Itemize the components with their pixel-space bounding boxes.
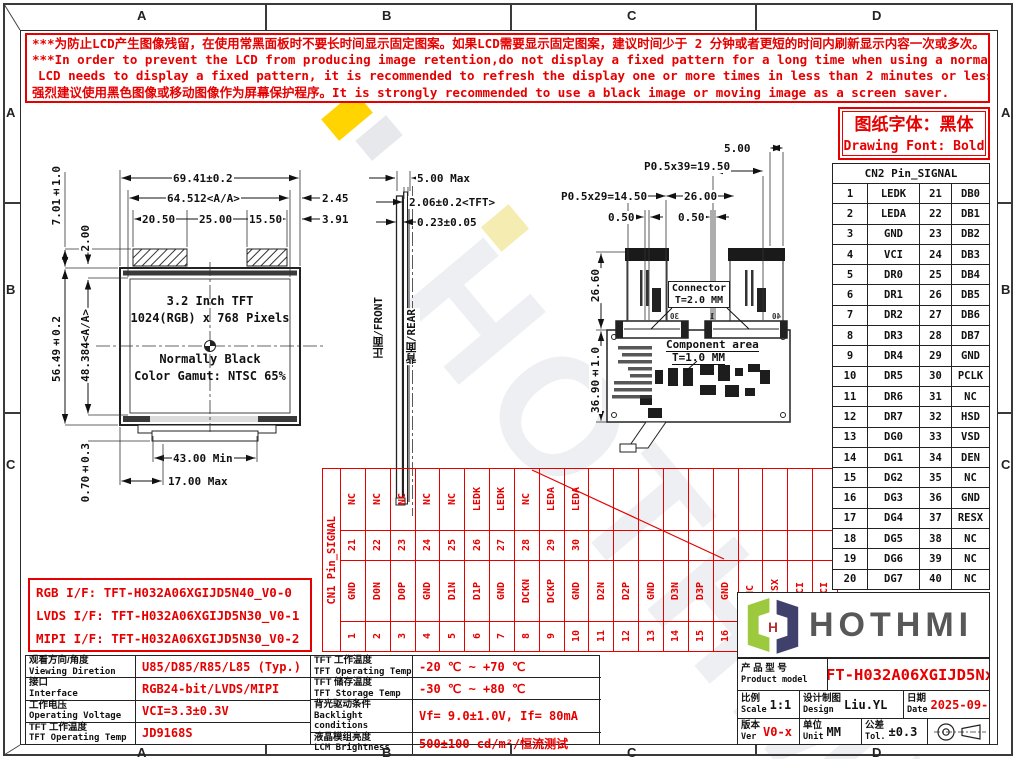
frame-divider <box>3 202 20 204</box>
interface-partnumber-box: RGB I/F: TFT-H032A06XGIJD5N40_V0-0 LVDS … <box>28 578 312 652</box>
cn1-signal-cell: LEDA <box>540 469 564 531</box>
spec-label: 背光驱动条件Backlight conditions <box>311 700 413 732</box>
spec-row: TFT 储存温度TFT Storage Temp-30 ℃ ~ +80 ℃ <box>311 678 601 700</box>
zone-col-bottom: A <box>137 745 146 759</box>
display-resolution-text: 1024(RGB) x 768 Pixels <box>130 311 290 325</box>
spec-row: 接口InterfaceRGB24-bit/LVDS/MIPI <box>26 678 311 700</box>
cn1-table-title: CN1 Pin_SIGNAL <box>323 469 341 651</box>
cn2-pin-cell: 6 <box>833 285 868 304</box>
cn2-signal-cell: GND <box>868 225 920 244</box>
spec-label: 工作电压Operating Voltage <box>26 701 136 722</box>
cn1-pin-cell: 24 <box>416 531 440 561</box>
cn1-column: LEDA29DCKP9 <box>540 469 565 651</box>
cn1-pin-cell: 30 <box>565 531 589 561</box>
hothmi-logo-mark: H <box>746 596 800 654</box>
cn2-signal-cell: DG6 <box>868 549 920 568</box>
cn1-pin-cell: 12 <box>614 622 638 651</box>
warning-line: LCD needs to display a fixed pattern, it… <box>32 68 983 84</box>
cn2-signal-cell: DB6 <box>952 306 989 325</box>
cn2-signal-cell: VCI <box>868 245 920 264</box>
dim-25-00: 25.00 <box>198 213 233 226</box>
unit-value: MM <box>826 725 840 739</box>
cn1-pin-cell: 21 <box>341 531 365 561</box>
cn2-signal-cell: DG1 <box>868 448 920 467</box>
cn2-pin-cell: 38 <box>920 529 952 548</box>
lvds-if-line: LVDS I/F: TFT-H032A06XGIJD5N30_V0-1 <box>36 604 310 627</box>
cn1-signal-cell: LEDK <box>490 469 514 531</box>
dim-26-60: 26.60 <box>589 268 602 303</box>
cn2-pin-cell: 32 <box>920 407 952 426</box>
cn1-pin-cell: 13 <box>639 622 663 651</box>
cn1-signal-cell: D1N <box>440 561 464 622</box>
cn2-pin-cell: 31 <box>920 387 952 406</box>
cn2-signal-cell: DB5 <box>952 285 989 304</box>
cn1-pin-cell: 5 <box>440 622 464 651</box>
cn2-signal-cell: PCLK <box>952 367 989 386</box>
cn2-signal-cell: NC <box>952 387 989 406</box>
cn1-signal-cell <box>589 469 613 531</box>
cn2-pin-cell: 40 <box>920 570 952 589</box>
dim-43-00-min: 43.00 Min <box>172 452 234 465</box>
dim-pitch-39: P0.5x39=19.50 <box>643 160 731 173</box>
cn1-pin-cell: 3 <box>391 622 415 651</box>
frame-divider <box>3 412 20 414</box>
cn2-pin-cell: 24 <box>920 245 952 264</box>
cn2-pin-cell: 35 <box>920 468 952 487</box>
zone-col-top: D <box>872 8 881 23</box>
cn1-pin-cell: 7 <box>490 622 514 651</box>
cn2-pin-cell: 34 <box>920 448 952 467</box>
cn1-signal-cell: DCKP <box>540 561 564 622</box>
frame-divider <box>510 3 512 30</box>
dim-height-aa: 48.384<A/A> <box>79 308 92 383</box>
cn1-signal-cell <box>614 469 638 531</box>
cn2-signal-cell: NC <box>952 570 989 589</box>
cn2-pin-cell: 23 <box>920 225 952 244</box>
dim-pitch-29: P0.5x29=14.50 <box>560 190 648 203</box>
cn2-signal-cell: DB7 <box>952 326 989 345</box>
dim-height-total: 56.49±0.2 <box>50 315 63 383</box>
cn2-row: 17DG437RESX <box>833 509 989 529</box>
cn2-signal-cell: DG3 <box>868 488 920 507</box>
unit-label: 单位Unit <box>803 721 823 742</box>
cn1-pin-cell <box>739 531 763 561</box>
cn1-column: GND13 <box>639 469 664 651</box>
cn2-pin-cell: 19 <box>833 549 868 568</box>
cn2-pin-cell: 28 <box>920 326 952 345</box>
spec-value: VCI=3.3±0.3V <box>136 701 311 722</box>
zone-col-top: C <box>627 8 636 23</box>
cn2-signal-cell: DG4 <box>868 509 920 528</box>
cn1-signal-cell <box>689 469 713 531</box>
dim-0-50-right: 0.50 <box>677 211 706 224</box>
cn2-pin-cell: 21 <box>920 184 952 203</box>
cn2-signal-cell: DR0 <box>868 265 920 284</box>
cn2-signal-cell: RESX <box>952 509 989 528</box>
rgb-if-line: RGB I/F: TFT-H032A06XGIJD5N40_V0-0 <box>36 581 310 604</box>
cn2-signal-cell: DG5 <box>868 529 920 548</box>
cn2-pin-cell: 16 <box>833 488 868 507</box>
cn2-signal-cell: DB2 <box>952 225 989 244</box>
warning-line: 强烈建议使用黑色图像或移动图像作为屏幕保护程序。It is strongly r… <box>32 85 983 101</box>
cn2-signal-cell: LEDA <box>868 204 920 223</box>
cn2-row: 10DR530PCLK <box>833 367 989 387</box>
cn2-row: 20DG740NC <box>833 570 989 589</box>
cn2-pin-cell: 37 <box>920 509 952 528</box>
cn2-row: 16DG336GND <box>833 488 989 508</box>
date-label: 日期Date <box>907 694 927 715</box>
cn2-signal-cell: DG0 <box>868 428 920 447</box>
cn1-column: NC25D1N5 <box>440 469 465 651</box>
cn1-pin-cell: 9 <box>540 622 564 651</box>
cn1-column: LEDK26D1P6 <box>465 469 490 651</box>
zone-row-right: A <box>1001 105 1010 120</box>
cn2-row: 11DR631NC <box>833 387 989 407</box>
cn1-column: D3P15 <box>689 469 714 651</box>
rear-side-label: 背面/REAR <box>404 308 420 365</box>
projection-symbol-icon <box>934 722 986 742</box>
dim-width-total: 69.41±0.2 <box>172 172 234 185</box>
cn2-row: 8DR328DB7 <box>833 326 989 346</box>
display-size-text: 3.2 Inch TFT <box>130 294 290 308</box>
dim-thickness-max: 5.00 Max <box>416 172 471 185</box>
frame-divider <box>265 3 267 30</box>
drawing-sheet: HOTHMI AABBCCDDAABBCC ***为防止LCD产生图像残留，在使… <box>0 0 1017 759</box>
pin-mark-40: 40 <box>772 312 781 321</box>
cn2-pin-cell: 33 <box>920 428 952 447</box>
cn2-signal-cell: DB1 <box>952 204 989 223</box>
cn1-column: LEDK27GND7 <box>490 469 515 651</box>
cn2-row: 14DG134DEN <box>833 448 989 468</box>
cn1-signal-cell: NC <box>440 469 464 531</box>
component-thickness-label: T=1.0 MM <box>672 351 725 365</box>
cn1-column: NC28DCKN8 <box>515 469 540 651</box>
cn1-pin-cell <box>589 531 613 561</box>
spec-row: 观看方向/角度Viewing DiretionU85/D85/R85/L85 (… <box>26 656 311 678</box>
dim-17-00-max: 17.00 Max <box>167 475 229 488</box>
pin-mark-1: 1 <box>710 312 715 321</box>
cn2-pin-table: CN2 Pin_SIGNAL 1LEDK21DB02LEDA22DB13GND2… <box>832 163 990 590</box>
cn1-pin-cell: 14 <box>664 622 688 651</box>
spec-label: TFT 储存温度TFT Storage Temp <box>311 678 413 699</box>
cn2-pin-cell: 7 <box>833 306 868 325</box>
spec-row: TFT 工作温度TFT Operating TempJD9168S <box>26 723 311 744</box>
cn2-signal-cell: DEN <box>952 448 989 467</box>
cn2-pin-cell: 4 <box>833 245 868 264</box>
cn1-signal-cell: D3P <box>689 561 713 622</box>
dim-tft-thickness: 2.06±0.2<TFT> <box>408 196 496 209</box>
frame-divider <box>998 412 1013 414</box>
cn2-row: 7DR227DB6 <box>833 306 989 326</box>
frame-divider <box>998 202 1013 204</box>
spec-value: 500±100 cd/m²/恒流测试 <box>413 733 601 754</box>
dim-0-23: 0.23±0.05 <box>416 216 478 229</box>
cn2-row: 9DR429GND <box>833 346 989 366</box>
cn1-signal-cell: NC <box>515 469 539 531</box>
spec-label: TFT 工作温度TFT Operating Temp <box>26 723 136 744</box>
zone-row-left: A <box>6 105 15 120</box>
cn2-pin-cell: 5 <box>833 265 868 284</box>
cn1-pin-cell: 2 <box>366 622 390 651</box>
cn1-pin-cell: 16 <box>714 622 738 651</box>
zone-row-left: C <box>6 457 15 472</box>
dim-3-91: 3.91 <box>321 213 350 226</box>
cn2-signal-cell: DR5 <box>868 367 920 386</box>
zone-row-left: B <box>6 282 15 297</box>
dim-2-45: 2.45 <box>321 192 350 205</box>
cn2-row: 12DR732HSD <box>833 407 989 427</box>
tolerance-value: ±0.3 <box>888 725 917 739</box>
zone-row-right: B <box>1001 282 1010 297</box>
cn1-column: D2P12 <box>614 469 639 651</box>
hothmi-logo-block: H HOTHMI <box>737 592 990 658</box>
cn1-signal-cell: D2N <box>589 561 613 622</box>
spec-row: 工作电压Operating VoltageVCI=3.3±0.3V <box>26 701 311 723</box>
cn1-column: NC22D0N2 <box>366 469 391 651</box>
zone-row-right: C <box>1001 457 1010 472</box>
cn1-signal-cell <box>639 469 663 531</box>
drawing-font-note: 图纸字体：黑体 Drawing Font: Bold <box>838 107 990 160</box>
cn1-pin-cell <box>639 531 663 561</box>
scale-value: 1:1 <box>770 698 792 712</box>
cn1-signal-cell: NC <box>341 469 365 531</box>
cn2-signal-cell: DG7 <box>868 570 920 589</box>
zone-col-top: A <box>137 8 146 23</box>
cn1-signal-cell: D2P <box>614 561 638 622</box>
front-side-label: 正面/FRONT <box>371 296 387 360</box>
hothmi-logo-text: HOTHMI <box>809 606 973 645</box>
cn1-column: D2N11 <box>589 469 614 651</box>
cn1-pin-cell: 8 <box>515 622 539 651</box>
spec-row: 背光驱动条件Backlight conditionsVf= 9.0±1.0V, … <box>311 700 601 733</box>
frame-divider <box>755 745 757 756</box>
cn1-signal-cell: LEDK <box>465 469 489 531</box>
cn2-signal-cell: DR3 <box>868 326 920 345</box>
spec-row: 液晶模组亮度LCM Brightness500±100 cd/m²/恒流测试 <box>311 733 601 754</box>
cn1-signal-cell: D3N <box>664 561 688 622</box>
spec-label: TFT 工作温度TFT Operating Temp <box>311 656 413 677</box>
frame-divider <box>755 3 757 30</box>
warning-line: ***In order to prevent the LCD from prod… <box>32 52 983 68</box>
dim-7-01: 7.01±1.0 <box>50 165 63 226</box>
cn2-pin-cell: 17 <box>833 509 868 528</box>
cn1-signal-cell: GND <box>565 561 589 622</box>
cn2-pin-cell: 27 <box>920 306 952 325</box>
front-view <box>65 170 324 485</box>
cn2-pin-cell: 11 <box>833 387 868 406</box>
cn2-signal-cell: GND <box>952 488 989 507</box>
product-model-label: 产 品 型 号Product model <box>741 664 808 685</box>
cn2-signal-cell: DB3 <box>952 245 989 264</box>
cn2-pin-cell: 2 <box>833 204 868 223</box>
cn2-pin-cell: 29 <box>920 346 952 365</box>
cn2-pin-cell: 10 <box>833 367 868 386</box>
cn1-signal-cell: GND <box>714 561 738 622</box>
cn1-column: NC21GND1 <box>341 469 366 651</box>
cn2-pin-cell: 22 <box>920 204 952 223</box>
cn1-pin-cell: 4 <box>416 622 440 651</box>
zone-col-bottom: B <box>382 745 391 759</box>
component-area-label: Component area <box>666 338 759 352</box>
svg-text:H: H <box>768 620 778 635</box>
spec-table: 观看方向/角度Viewing DiretionU85/D85/R85/L85 (… <box>25 655 600 745</box>
cn1-pin-cell <box>714 531 738 561</box>
cn2-row: 3GND23DB2 <box>833 225 989 245</box>
dim-0-70: 0.70±0.3 <box>79 442 92 503</box>
zone-col-bottom: C <box>627 745 636 759</box>
cn1-signal-cell: DCKN <box>515 561 539 622</box>
cn2-signal-cell: NC <box>952 468 989 487</box>
cn2-pin-cell: 20 <box>833 570 868 589</box>
cn1-column: NC23D0P3 <box>391 469 416 651</box>
dim-5-00: 5.00 <box>723 142 752 155</box>
cn2-signal-cell: VSD <box>952 428 989 447</box>
cn2-pin-cell: 1 <box>833 184 868 203</box>
display-mode-text: Normally Black <box>130 352 290 366</box>
product-model-value: TFT-H032A06XGIJD5Nx0 <box>828 666 989 684</box>
warning-line: ***为防止LCD产生图像残留，在使用常黑面板时不要长时间显示固定图案。如果LC… <box>32 36 983 52</box>
cn2-signal-cell: DR4 <box>868 346 920 365</box>
cn2-row: 6DR126DB5 <box>833 285 989 305</box>
cn1-column: GND16 <box>714 469 739 651</box>
cn1-pin-cell: 27 <box>490 531 514 561</box>
cn2-signal-cell: LEDK <box>868 184 920 203</box>
cn1-signal-cell: GND <box>490 561 514 622</box>
cn2-signal-cell: DR2 <box>868 306 920 325</box>
cn2-signal-cell: NC <box>952 529 989 548</box>
cn2-signal-cell: DB4 <box>952 265 989 284</box>
zone-col-top: B <box>382 8 391 23</box>
cn2-row: 15DG235NC <box>833 468 989 488</box>
cn1-pin-cell: 22 <box>366 531 390 561</box>
cn2-pin-cell: 36 <box>920 488 952 507</box>
cn2-row: 13DG033VSD <box>833 428 989 448</box>
dim-36-90: 36.90±1.0 <box>589 346 602 414</box>
cn1-pin-cell: 26 <box>465 531 489 561</box>
cn1-pin-cell: 29 <box>540 531 564 561</box>
cn2-pin-cell: 30 <box>920 367 952 386</box>
spec-value: JD9168S <box>136 723 311 744</box>
cn1-pin-cell: 11 <box>589 622 613 651</box>
display-gamut-text: Color Gamut: NTSC 65% <box>130 369 290 383</box>
version-value: V0-x <box>763 725 792 739</box>
frame-divider <box>265 745 267 756</box>
cn1-pin-cell <box>788 531 812 561</box>
cn2-pin-cell: 25 <box>920 265 952 284</box>
dim-26-00: 26.00 <box>683 190 718 203</box>
cn2-pin-cell: 26 <box>920 285 952 304</box>
spec-row: TFT 工作温度TFT Operating Temp-20 ℃ ~ +70 ℃ <box>311 656 601 678</box>
cn1-pin-cell: 1 <box>341 622 365 651</box>
cn1-signal-cell: GND <box>341 561 365 622</box>
dim-15-50: 15.50 <box>248 213 283 226</box>
cn2-pin-cell: 8 <box>833 326 868 345</box>
cn2-signal-cell: DG2 <box>868 468 920 487</box>
cn1-pin-cell: 6 <box>465 622 489 651</box>
title-block: 产 品 型 号Product model TFT-H032A06XGIJD5Nx… <box>737 658 990 745</box>
cn1-signal-cell <box>714 469 738 531</box>
cn1-signal-cell: D0P <box>391 561 415 622</box>
version-label: 版本Ver <box>741 721 760 742</box>
cn1-signal-cell <box>763 469 787 531</box>
cn2-pin-cell: 9 <box>833 346 868 365</box>
image-retention-warning: ***为防止LCD产生图像残留，在使用常黑面板时不要长时间显示固定图案。如果LC… <box>25 33 990 103</box>
cn2-row: 19DG639NC <box>833 549 989 569</box>
dim-2-00: 2.00 <box>79 224 92 253</box>
cn1-signal-cell <box>664 469 688 531</box>
cn1-signal-cell: D0N <box>366 561 390 622</box>
cn2-row: 1LEDK21DB0 <box>833 184 989 204</box>
spec-value: -20 ℃ ~ +70 ℃ <box>413 656 601 677</box>
cn2-table-title: CN2 Pin_SIGNAL <box>833 164 989 184</box>
spec-label: 观看方向/角度Viewing Diretion <box>26 656 136 677</box>
cn1-pin-cell <box>664 531 688 561</box>
cn1-pin-cell <box>614 531 638 561</box>
cn1-signal-cell: NC <box>416 469 440 531</box>
cn1-signal-cell: NC <box>391 469 415 531</box>
cn1-signal-cell: LEDA <box>565 469 589 531</box>
cn1-signal-cell: NC <box>366 469 390 531</box>
cn1-pin-cell: 28 <box>515 531 539 561</box>
dim-20-50: 20.50 <box>141 213 176 226</box>
dim-0-50-left: 0.50 <box>607 211 636 224</box>
cn1-pin-cell: 10 <box>565 622 589 651</box>
spec-value: -30 ℃ ~ +80 ℃ <box>413 678 601 699</box>
cn1-pin-cell: 23 <box>391 531 415 561</box>
cn1-pin-cell <box>689 531 713 561</box>
cn2-signal-cell: DR7 <box>868 407 920 426</box>
cn1-column: NC24GND4 <box>416 469 441 651</box>
cn2-pin-cell: 12 <box>833 407 868 426</box>
zone-col-bottom: D <box>872 745 881 759</box>
cn2-pin-cell: 13 <box>833 428 868 447</box>
cn2-signal-cell: DR1 <box>868 285 920 304</box>
cn2-pin-cell: 14 <box>833 448 868 467</box>
font-note-cn: 图纸字体：黑体 <box>843 112 985 138</box>
cn2-signal-cell: NC <box>952 549 989 568</box>
cn1-signal-cell: D1P <box>465 561 489 622</box>
cn2-row: 5DR025DB4 <box>833 265 989 285</box>
cn1-pin-cell: 25 <box>440 531 464 561</box>
spec-value: U85/D85/R85/L85 (Typ.) <box>136 656 311 677</box>
scale-label: 比例Scale <box>741 694 767 715</box>
mipi-if-line: MIPI I/F: TFT-H032A06XGIJD5N30_V0-2 <box>36 627 310 650</box>
cn2-signal-cell: DB0 <box>952 184 989 203</box>
tolerance-label: 公差Tol. <box>865 721 885 742</box>
cn2-pin-cell: 15 <box>833 468 868 487</box>
cn1-signal-cell <box>788 469 812 531</box>
spec-value: RGB24-bit/LVDS/MIPI <box>136 678 311 699</box>
cn2-row: 4VCI24DB3 <box>833 245 989 265</box>
cn1-column: LEDA30GND10 <box>565 469 590 651</box>
dim-width-aa: 64.512<A/A> <box>166 192 241 205</box>
cn1-column: D3N14 <box>664 469 689 651</box>
cn1-pin-cell <box>763 531 787 561</box>
spec-label: 接口Interface <box>26 678 136 699</box>
cn2-pin-cell: 18 <box>833 529 868 548</box>
date-value: 2025-09-05 <box>930 698 989 712</box>
cn1-signal-cell: GND <box>639 561 663 622</box>
cn2-row: 2LEDA22DB1 <box>833 204 989 224</box>
pin-mark-30: 30 <box>670 312 679 321</box>
cn1-signal-cell <box>739 469 763 531</box>
cn2-pin-cell: 3 <box>833 225 868 244</box>
cn1-pin-cell: 15 <box>689 622 713 651</box>
design-label: 设计制图Design <box>803 694 841 715</box>
cn1-signal-cell: GND <box>416 561 440 622</box>
cn2-signal-cell: DR6 <box>868 387 920 406</box>
spec-label: 液晶模组亮度LCM Brightness <box>311 733 413 754</box>
